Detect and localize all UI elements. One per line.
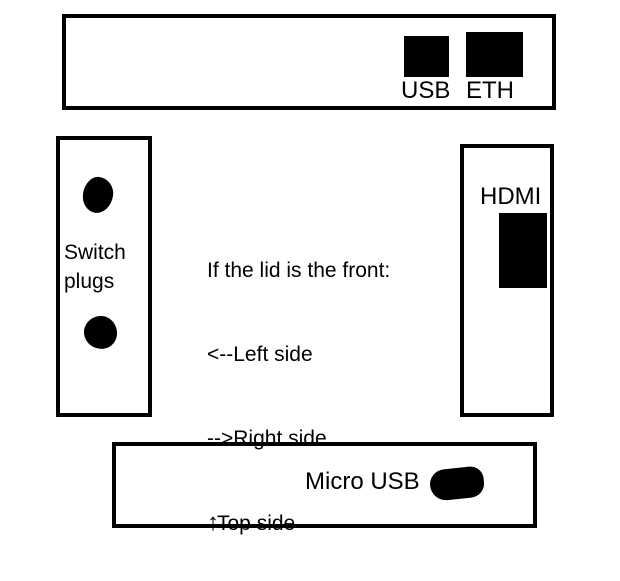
hdmi-port-label: HDMI — [480, 185, 541, 209]
switch-plugs-label: Switch plugs — [64, 238, 126, 296]
hdmi-port-icon — [499, 213, 547, 288]
top-side-panel: USB ETH — [62, 14, 556, 110]
switch-plugs-label-line2: plugs — [64, 267, 126, 296]
ethernet-port-label: ETH — [466, 79, 514, 103]
ethernet-port-icon — [466, 32, 523, 77]
orientation-note: If the lid is the front: <--Left side --… — [207, 201, 390, 581]
switch-plug-bottom-icon — [82, 314, 118, 350]
switch-plug-top-icon — [81, 175, 116, 215]
orientation-note-top-side-text: Top side — [217, 512, 295, 535]
up-arrow-icon: ↑ — [207, 509, 217, 536]
orientation-note-title: If the lid is the front: — [207, 257, 390, 285]
usb-port-icon — [404, 36, 449, 77]
right-side-panel: HDMI — [460, 144, 554, 417]
left-side-panel: Switch plugs — [56, 136, 152, 417]
switch-plugs-label-line1: Switch — [64, 238, 126, 267]
micro-usb-port-icon — [429, 465, 486, 501]
orientation-note-right-side: -->Right side — [207, 425, 390, 453]
usb-port-label: USB — [401, 79, 450, 103]
orientation-note-left-side: <--Left side — [207, 341, 390, 369]
orientation-note-top-side: ↑Top side — [207, 509, 390, 537]
device-sides-diagram: USB ETH Switch plugs HDMI Micro USB If t… — [0, 0, 620, 581]
